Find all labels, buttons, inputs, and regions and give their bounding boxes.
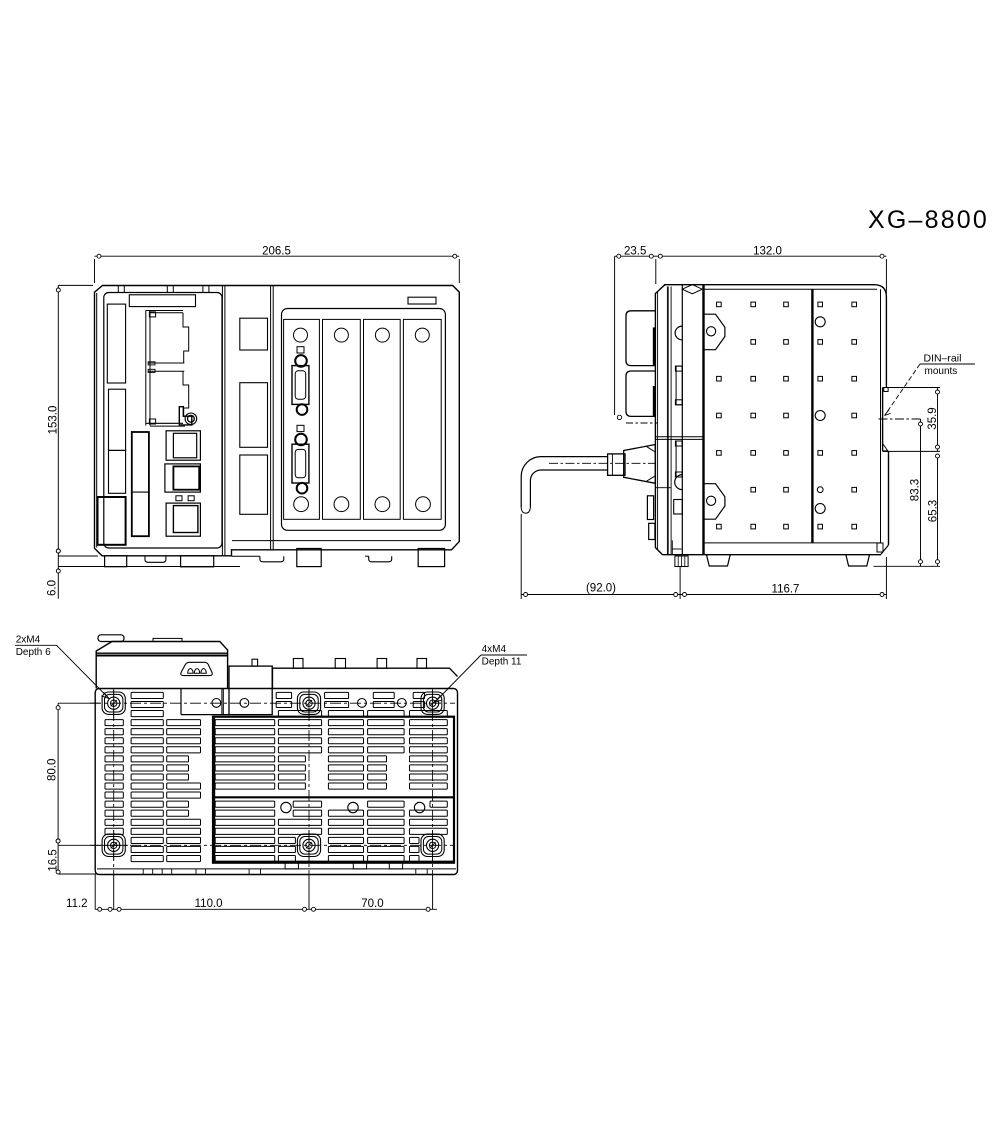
svg-text:4xM4: 4xM4 xyxy=(482,644,507,655)
svg-text:16.5: 16.5 xyxy=(47,849,59,871)
svg-text:Depth 11: Depth 11 xyxy=(482,656,522,667)
svg-text:DIN–rail: DIN–rail xyxy=(924,352,962,364)
svg-text:11.2: 11.2 xyxy=(66,898,88,910)
svg-text:2xM4: 2xM4 xyxy=(16,635,41,646)
svg-text:206.5: 206.5 xyxy=(262,246,291,258)
svg-text:XG–8800: XG–8800 xyxy=(868,206,989,234)
svg-text:83.3: 83.3 xyxy=(910,479,922,501)
svg-text:Depth 6: Depth 6 xyxy=(16,647,51,658)
svg-text:23.5: 23.5 xyxy=(624,246,646,258)
svg-text:65.3: 65.3 xyxy=(927,500,939,522)
svg-text:110.0: 110.0 xyxy=(195,898,223,910)
svg-text:153.0: 153.0 xyxy=(48,406,60,435)
svg-text:116.7: 116.7 xyxy=(772,584,800,596)
svg-text:70.0: 70.0 xyxy=(361,898,383,910)
svg-text:mounts: mounts xyxy=(925,366,958,377)
svg-text:80.0: 80.0 xyxy=(47,759,59,781)
svg-text:(92.0): (92.0) xyxy=(586,583,616,595)
svg-text:132.0: 132.0 xyxy=(753,246,782,258)
svg-text:6.0: 6.0 xyxy=(47,580,59,596)
svg-text:35.9: 35.9 xyxy=(927,407,939,429)
